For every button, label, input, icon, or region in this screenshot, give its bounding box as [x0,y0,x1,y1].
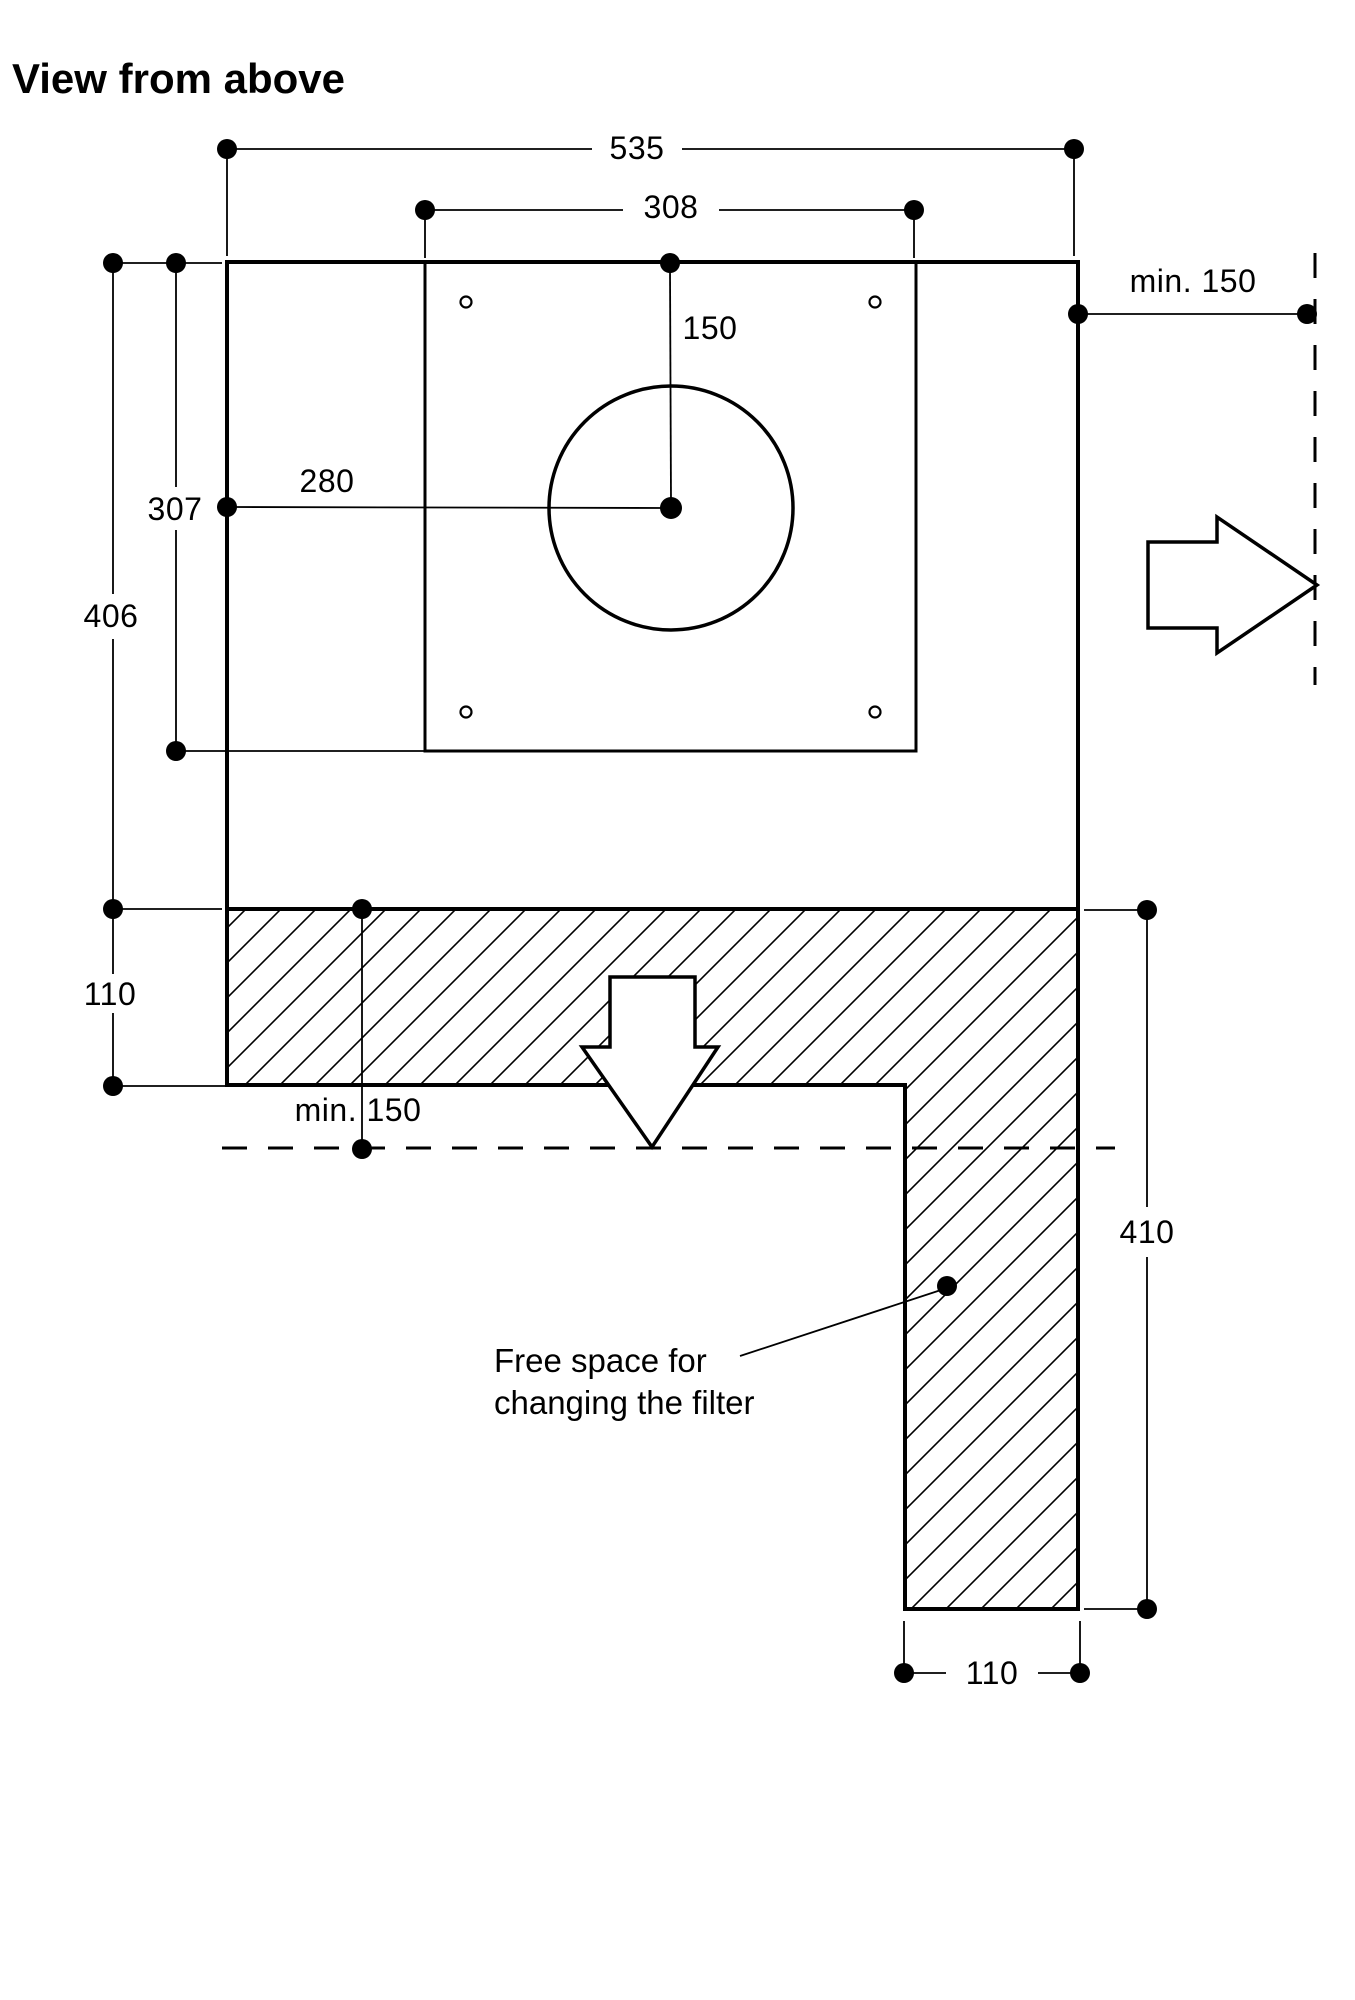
dim-line-280 [233,507,665,508]
screw-hole-top-right [870,297,881,308]
dot [1068,304,1088,324]
dot-duct-center [660,497,682,519]
hood-body-outline [227,262,1078,909]
dim-150-label: 150 [683,312,738,344]
dim-535-label: 535 [610,132,665,164]
dot [1064,139,1084,159]
dot [103,253,123,273]
free-space-note-line2: changing the filter [494,1384,755,1421]
page-title: View from above [12,58,345,100]
dot [1070,1663,1090,1683]
dot [352,899,372,919]
dot [217,139,237,159]
dim-110-left-label: 110 [84,978,137,1010]
dot [103,899,123,919]
free-space-note-line1: Free space for [494,1342,707,1379]
dim-min150-front-label: min. 150 [295,1094,422,1126]
dim-min150-right-label: min. 150 [1130,265,1257,297]
dot [217,497,237,517]
dim-410-label: 410 [1120,1216,1175,1248]
screw-hole-bottom-right [870,707,881,718]
dot [166,253,186,273]
right-arrow-icon [1148,517,1317,653]
dot [103,1076,123,1096]
dim-line-150 [670,269,671,502]
dot [352,1139,372,1159]
dot [1297,304,1317,324]
dot [1137,900,1157,920]
diagram-canvas [0,0,1355,2000]
screw-hole-bottom-left [461,707,472,718]
free-space-note: Free space for changing the filter [494,1340,834,1424]
installation-diagram: View from above 535 308 min. 150 150 280… [0,0,1355,2000]
dot [660,253,680,273]
dim-307-label: 307 [148,493,203,525]
screw-hole-top-left [461,297,472,308]
dot [166,741,186,761]
dot-free-space [937,1276,957,1296]
dot [894,1663,914,1683]
dim-308-label: 308 [644,191,699,223]
dim-110-bottom-label: 110 [966,1657,1019,1689]
dot [415,200,435,220]
dim-280-label: 280 [300,465,355,497]
dot [904,200,924,220]
dot [1137,1599,1157,1619]
dim-406-label: 406 [84,600,139,632]
